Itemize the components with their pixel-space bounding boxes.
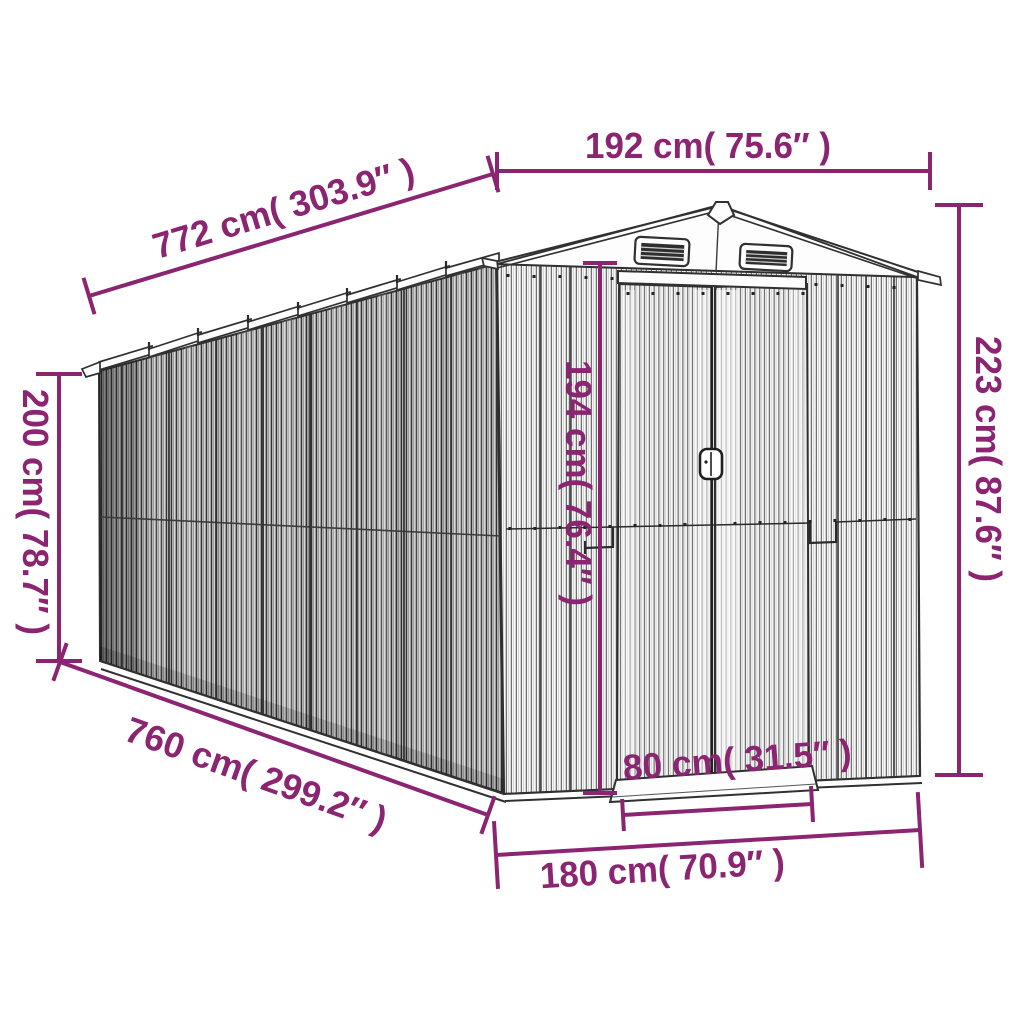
svg-text:223 cm( 87.6″ ): 223 cm( 87.6″ ) [968,336,1009,582]
svg-text:200 cm( 78.7″ ): 200 cm( 78.7″ ) [15,389,56,635]
svg-text:192 cm( 75.6″ ): 192 cm( 75.6″ ) [585,125,831,166]
svg-text:194 cm( 76.4″ ): 194 cm( 76.4″ ) [558,360,599,606]
